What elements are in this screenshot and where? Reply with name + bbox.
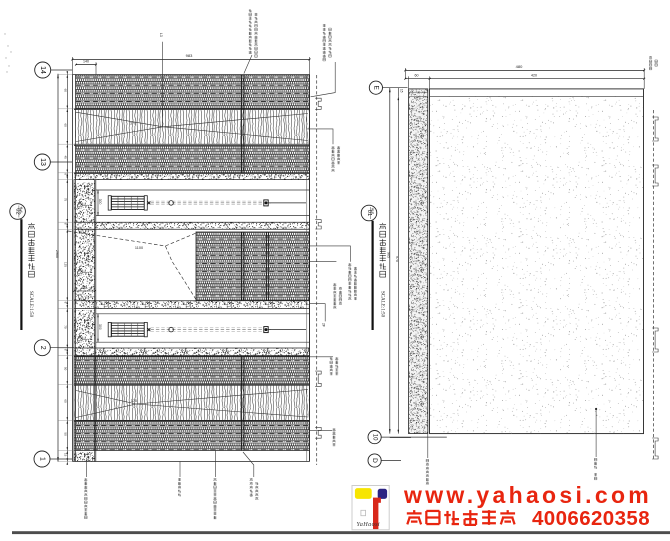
svg-text:300: 300 <box>98 324 102 330</box>
svg-text:15: 15 <box>64 453 68 457</box>
svg-text:L3: L3 <box>159 33 163 37</box>
svg-text:983: 983 <box>186 53 193 58</box>
svg-text:60: 60 <box>415 74 419 78</box>
svg-text:50: 50 <box>64 432 68 436</box>
svg-text:01: 01 <box>366 210 372 216</box>
svg-text:140: 140 <box>82 286 88 290</box>
svg-text:02: 02 <box>15 208 21 214</box>
svg-text:D: D <box>371 458 378 463</box>
svg-text:E: E <box>372 86 379 91</box>
svg-text:75: 75 <box>64 198 68 202</box>
svg-text:1100: 1100 <box>135 246 143 250</box>
svg-text:140: 140 <box>83 60 89 64</box>
svg-text:970: 970 <box>395 256 399 262</box>
svg-text:4006620358: 4006620358 <box>532 507 650 530</box>
svg-text:YaHaosi: YaHaosi <box>357 521 381 528</box>
svg-text:SCALE:1:50: SCALE:1:50 <box>28 291 33 318</box>
svg-text:60: 60 <box>64 124 68 128</box>
svg-text:45: 45 <box>64 156 68 160</box>
svg-text:370: 370 <box>131 399 137 403</box>
svg-text:60: 60 <box>64 399 68 403</box>
svg-text:480: 480 <box>516 64 523 69</box>
svg-text:1: 1 <box>39 457 46 461</box>
svg-text:905: 905 <box>387 252 391 258</box>
svg-text:2: 2 <box>39 346 46 350</box>
svg-text:SCALE:1:50: SCALE:1:50 <box>379 291 384 318</box>
svg-text:125: 125 <box>64 262 68 267</box>
svg-text:70: 70 <box>64 325 68 329</box>
svg-text:420: 420 <box>531 74 537 78</box>
svg-text:50: 50 <box>64 367 68 371</box>
svg-text:www.yahaosi.com: www.yahaosi.com <box>403 482 652 508</box>
svg-text:10: 10 <box>372 434 378 441</box>
svg-text:13: 13 <box>39 158 46 166</box>
svg-text:300: 300 <box>98 199 102 205</box>
svg-text:2900: 2900 <box>55 250 59 258</box>
svg-text:14: 14 <box>39 66 46 74</box>
svg-text:15: 15 <box>400 89 404 93</box>
svg-text:2F: 2F <box>322 323 326 327</box>
svg-text:60: 60 <box>64 89 68 93</box>
svg-text:370: 370 <box>130 121 136 125</box>
